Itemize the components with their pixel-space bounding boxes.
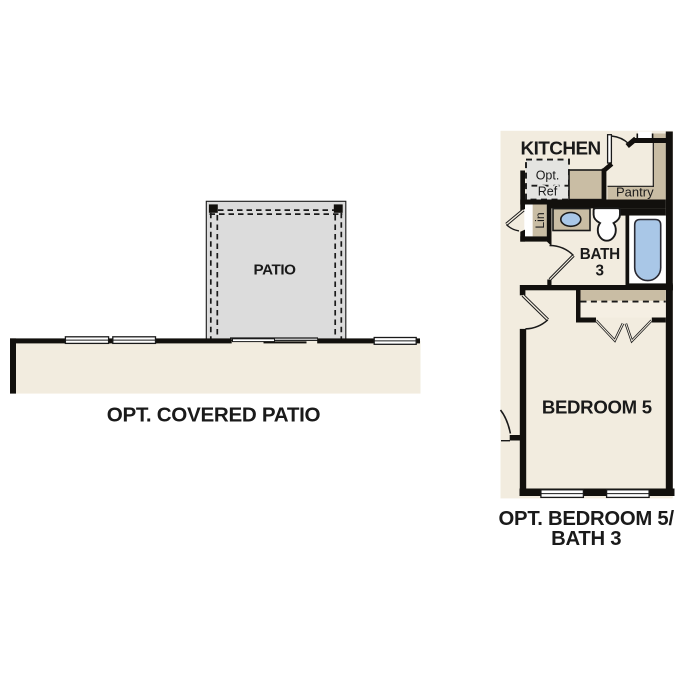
svg-text:Opt.: Opt. [536,169,560,183]
svg-text:3: 3 [596,263,604,280]
svg-text:Pantry: Pantry [616,185,654,200]
svg-text:KITCHEN: KITCHEN [521,138,601,159]
svg-text:BATH 3: BATH 3 [551,528,621,550]
svg-text:BATH: BATH [580,246,620,263]
svg-text:PATIO: PATIO [254,262,297,279]
svg-text:Lin: Lin [533,212,547,228]
svg-text:OPT. BEDROOM 5/: OPT. BEDROOM 5/ [499,508,675,530]
svg-text:OPT. COVERED PATIO: OPT. COVERED PATIO [107,404,321,427]
svg-text:Ref: Ref [538,185,558,199]
svg-text:BEDROOM 5: BEDROOM 5 [542,396,652,417]
